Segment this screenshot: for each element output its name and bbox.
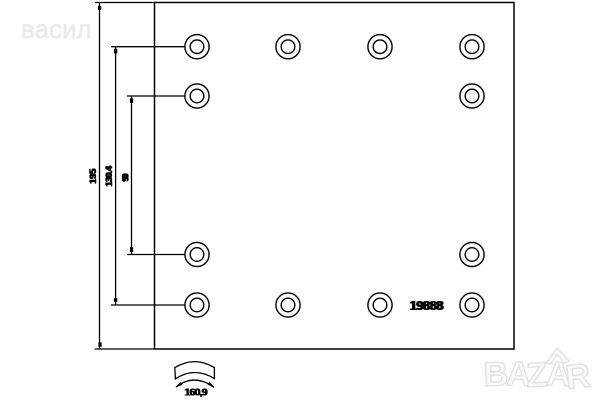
svg-text:васил: васил [21, 14, 92, 44]
svg-text:Z: Z [525, 356, 548, 395]
svg-text:130.4: 130.4 [104, 165, 114, 186]
svg-text:195: 195 [88, 168, 98, 183]
svg-text:R: R [564, 357, 592, 397]
svg-text:160,9: 160,9 [185, 387, 208, 399]
svg-text:19888: 19888 [411, 298, 445, 313]
svg-text:90: 90 [121, 173, 131, 181]
